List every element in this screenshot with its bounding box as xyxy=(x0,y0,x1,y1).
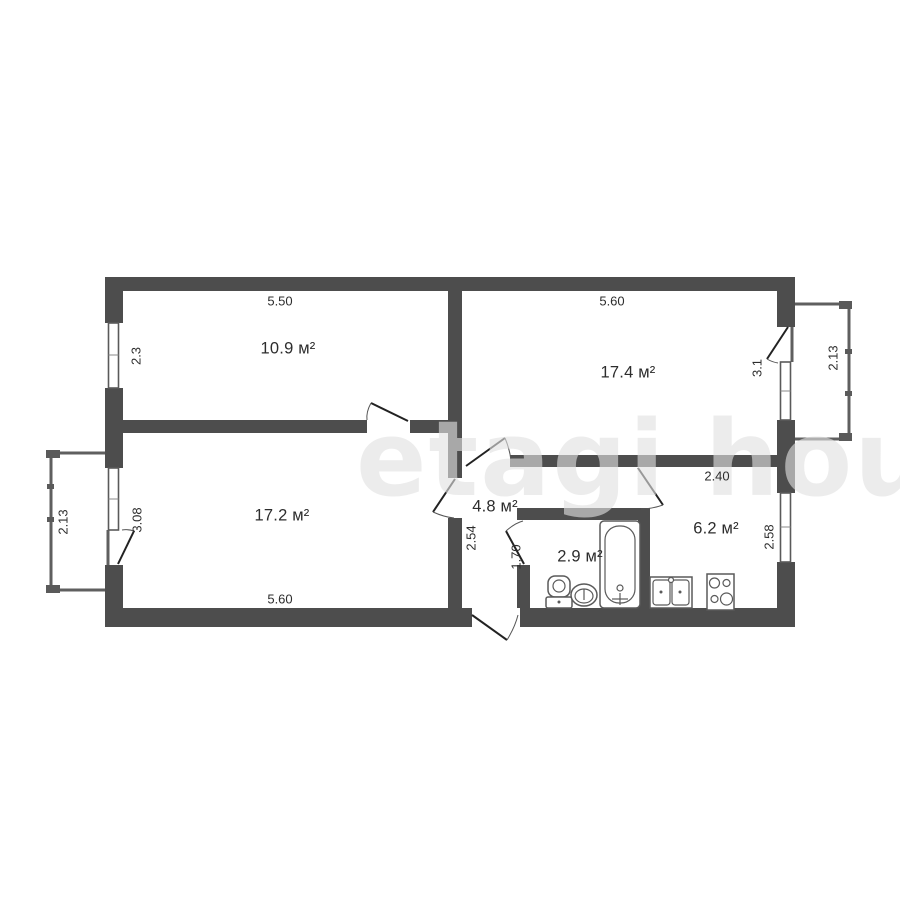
floor-plan: etagi house 5.50 10.9 м² 2.3 5.60 17.4 м… xyxy=(0,0,900,900)
room-bottom-left-balcony-dim: 3.08 xyxy=(130,507,145,532)
door-balcony-right xyxy=(767,327,788,363)
toilet-icon xyxy=(546,576,572,608)
room-top-left-width-dim: 5.50 xyxy=(267,294,292,309)
kitchen-sink-icon xyxy=(650,577,692,608)
wash-basin-icon xyxy=(571,584,597,606)
bathtub-icon xyxy=(600,521,640,608)
balcony-right-length-dim: 2.13 xyxy=(826,345,841,370)
room-top-left-window-dim: 2.3 xyxy=(129,347,144,365)
watermark: etagi house xyxy=(356,398,900,520)
room-top-left-area-label: 10.9 м² xyxy=(261,340,316,359)
room-bottom-left-width-dim: 5.60 xyxy=(267,592,292,607)
balcony-left-length-dim: 2.13 xyxy=(56,509,71,534)
hallway-depth-dim: 2.54 xyxy=(464,525,479,550)
door-balcony-left xyxy=(118,530,134,564)
window-room-top-left xyxy=(104,323,124,388)
kitchen-area-label: 6.2 м² xyxy=(693,520,739,539)
bathroom-area-label: 2.9 м² xyxy=(557,548,603,567)
door-entrance xyxy=(472,615,518,640)
kitchen-width-dim: 2.40 xyxy=(704,469,729,484)
room-top-right-width-dim: 5.60 xyxy=(599,294,624,309)
room-bottom-left-area-label: 17.2 м² xyxy=(255,507,310,526)
bathroom-door-wall-dim: 1.70 xyxy=(509,544,524,569)
window-room-bottom-left xyxy=(104,468,124,530)
kitchen-window-dim: 2.58 xyxy=(762,524,777,549)
stove-icon xyxy=(707,574,734,610)
room-top-right-balcony-dim: 3.1 xyxy=(750,359,765,377)
hallway-area-label: 4.8 м² xyxy=(472,498,518,517)
room-top-right-area-label: 17.4 м² xyxy=(601,364,656,383)
